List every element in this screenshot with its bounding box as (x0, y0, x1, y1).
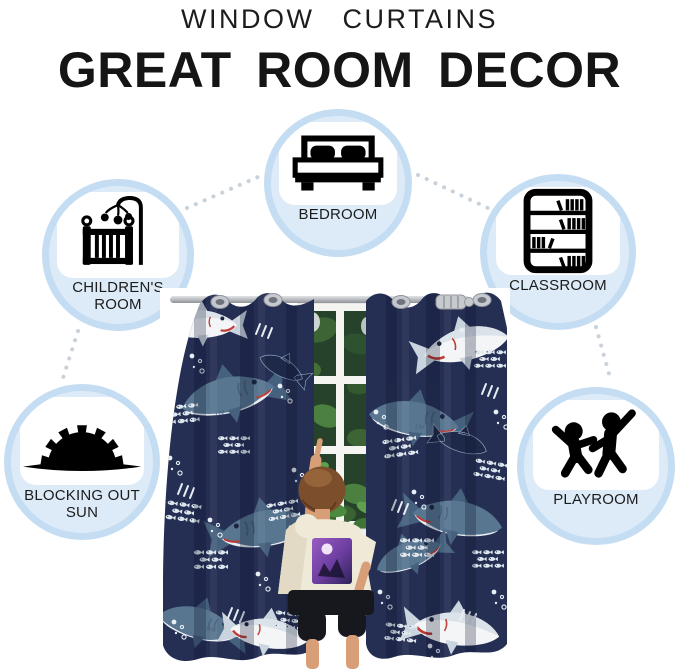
sun-icon (21, 405, 143, 477)
crib-icon (74, 194, 162, 276)
feature-label: CLASSROOM (496, 277, 621, 294)
feature-label: BLOCKING OUT SUN (20, 487, 145, 522)
bed-icon (287, 132, 389, 196)
product-photo: LIV LIV LIV (160, 288, 510, 669)
feature-label: BEDROOM (279, 206, 397, 223)
feature-label: PLAYROOM (533, 491, 660, 508)
feature-playroom: PLAYROOM (517, 387, 675, 545)
curtain-panel-right: LIV (362, 288, 510, 669)
feature-blocking-out-sun: BLOCKING OUT SUN (4, 384, 160, 540)
header: WINDOW CURTAINS GREAT ROOM DECOR (0, 0, 679, 99)
page: { "header": { "subtitle": "WINDOW CURTAI… (0, 0, 679, 669)
page-title: GREAT ROOM DECOR (0, 41, 679, 99)
header-subtitle: WINDOW CURTAINS (0, 4, 679, 35)
bookshelf-icon (520, 188, 596, 274)
feature-bedroom: BEDROOM (264, 109, 412, 257)
playing-children-icon (548, 405, 644, 485)
